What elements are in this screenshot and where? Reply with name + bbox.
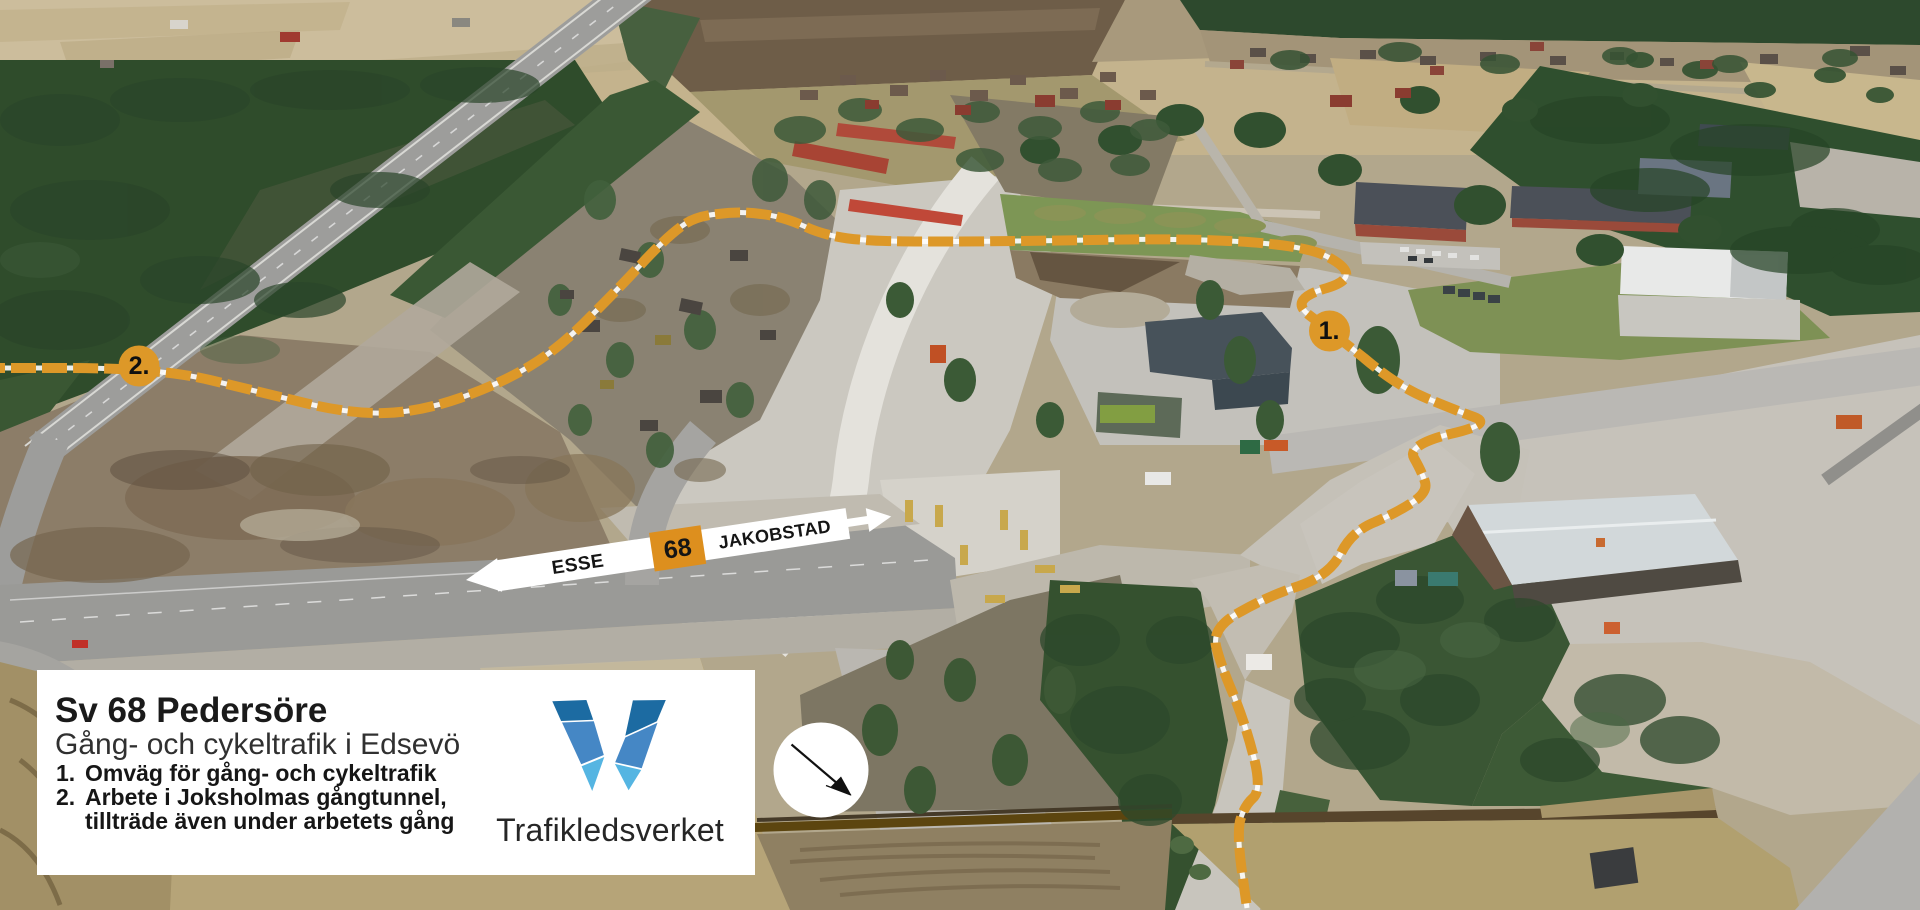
svg-text:2.: 2.	[129, 352, 150, 380]
svg-text:68: 68	[662, 533, 694, 565]
svg-text:1.: 1.	[1319, 317, 1340, 345]
